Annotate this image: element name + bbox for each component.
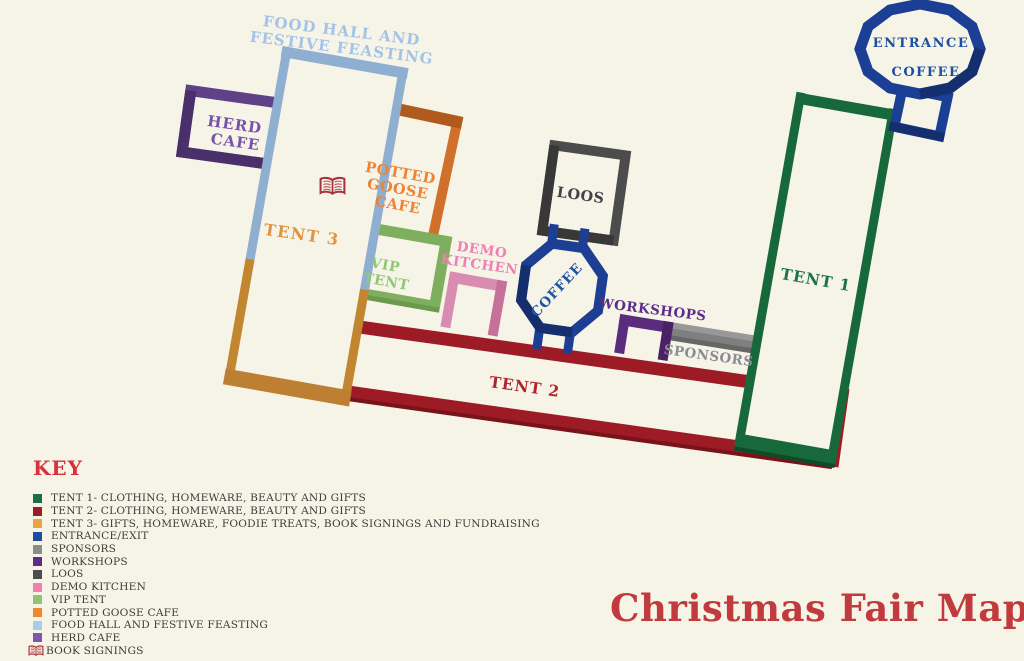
key-item: TENT 3- GIFTS, HOMEWARE, FOODIE TREATS, … [33,517,553,530]
key-item-label: SPONSORS [51,543,116,555]
fair-map-page: FOOD HALL AND FESTIVE FEASTING HERD CAFE… [0,0,1024,661]
key-item: ENTRANCE/EXIT [33,530,553,543]
key-swatch [33,633,42,642]
key-item-label: DEMO KITCHEN [51,581,146,593]
page-title: Christmas Fair Map [610,586,970,630]
key-list: TENT 1- CLOTHING, HOMEWARE, BEAUTY AND G… [33,492,553,657]
key-item: LOOS [33,568,553,581]
key-item-label: TENT 1- CLOTHING, HOMEWARE, BEAUTY AND G… [51,492,366,504]
key-item: TENT 1- CLOTHING, HOMEWARE, BEAUTY AND G… [33,492,553,505]
key-item: POTTED GOOSE CAFE [33,606,553,619]
key-item: WORKSHOPS [33,555,553,568]
key-swatch [33,532,42,541]
key-item-label: ENTRANCE/EXIT [51,530,149,542]
key-item-label: FOOD HALL AND FESTIVE FEASTING [51,619,268,631]
key-item: FOOD HALL AND FESTIVE FEASTING [33,619,553,632]
key-item-label: VIP TENT [51,594,106,606]
key-swatch [33,494,42,503]
key-swatch [33,621,42,630]
key-item: DEMO KITCHEN [33,581,553,594]
book-signings-icon [28,645,44,657]
tent-2-label: TENT 2 [488,372,561,401]
key-swatch [33,570,42,579]
key-item-label: LOOS [51,568,83,580]
key-item: SPONSORS [33,543,553,556]
demo-kitchen-shape [440,271,507,336]
key-swatch [33,519,42,528]
book-signings-map-icon [321,178,345,194]
key-item-label: BOOK SIGNINGS [46,645,144,657]
key-item: BOOK SIGNINGS [33,644,553,657]
key-item-label: HERD CAFE [51,632,120,644]
key-heading: KEY [33,456,553,480]
key-item-label: WORKSHOPS [51,556,128,568]
key-item: TENT 2- CLOTHING, HOMEWARE, BEAUTY AND G… [33,505,553,518]
key-swatch [33,545,42,554]
key-swatch [33,557,42,566]
key-swatch [33,507,42,516]
key-swatch [33,608,42,617]
key-item-label: TENT 2- CLOTHING, HOMEWARE, BEAUTY AND G… [51,505,366,517]
key-item: VIP TENT [33,594,553,607]
key-swatch [33,595,42,604]
key-item: HERD CAFE [33,632,553,645]
key-item-label: TENT 3- GIFTS, HOMEWARE, FOODIE TREATS, … [51,518,540,530]
key-swatch [33,583,42,592]
key-item-label: POTTED GOOSE CAFE [51,607,179,619]
key-panel: KEY TENT 1- CLOTHING, HOMEWARE, BEAUTY A… [33,456,553,657]
